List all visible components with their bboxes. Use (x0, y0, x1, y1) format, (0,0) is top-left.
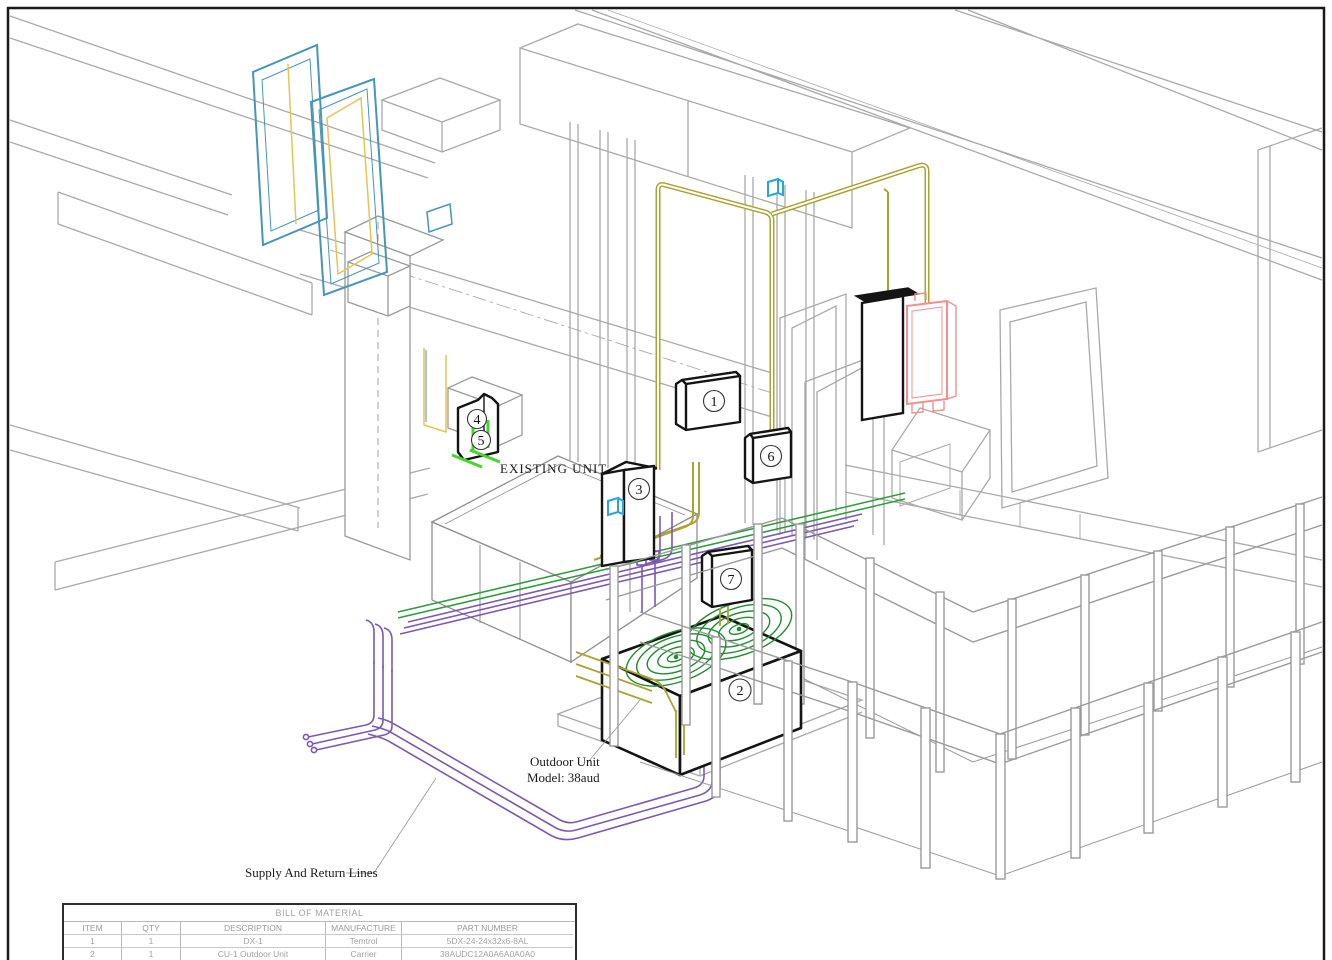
outdoor-unit-label-line2: Model: 38aud (527, 770, 600, 785)
outdoor-unit-label-line1: Outdoor Unit (530, 754, 600, 769)
callout-1[interactable]: 1 (676, 372, 740, 430)
bom-col-part-number: PART NUMBER (402, 922, 573, 935)
drawing-sheet: 2 3 1 (0, 0, 1332, 960)
bom-title: BILL OF MATERIAL (64, 905, 575, 922)
bom-row2-qty: 1 (122, 948, 181, 960)
bom-row2-item: 2 (64, 948, 122, 960)
bom-row1-part-number: 5DX-24-24x32x6-8AL (402, 935, 573, 948)
bom-col-manufacture: MANUFACTURE (326, 922, 402, 935)
bom-row2-part-number: 38AUDC12A0A6A0A0A0 (402, 948, 573, 960)
supply-return-label: Supply And Return Lines (245, 865, 378, 880)
bom-col-description: DESCRIPTION (181, 922, 326, 935)
callout-7[interactable]: 7 (702, 546, 752, 607)
callout-5-number: 5 (478, 434, 485, 449)
bom-row1-description: DX-1 (181, 935, 326, 948)
bom-row1-qty: 1 (122, 935, 181, 948)
isometric-scene: 2 3 1 (0, 0, 1332, 960)
sheet-border (8, 8, 1324, 960)
bill-of-material-table: BILL OF MATERIAL ITEM QTY DESCRIPTION MA… (62, 903, 577, 960)
callout-6-number: 6 (768, 450, 775, 465)
bom-row2-manufacture: Carrier (326, 948, 402, 960)
callout-3-number: 3 (636, 483, 643, 498)
bom-row1-item: 1 (64, 935, 122, 948)
callout-1-number: 1 (711, 395, 718, 410)
bom-row1-manufacture: Temtrol (326, 935, 402, 948)
bom-row2-description: CU-1 Outdoor Unit (181, 948, 326, 960)
callout-2-number: 2 (737, 684, 744, 699)
bom-col-item: ITEM (64, 922, 122, 935)
callout-6[interactable]: 6 (745, 428, 791, 483)
callout-7-number: 7 (728, 573, 735, 588)
bom-col-qty: QTY (122, 922, 181, 935)
existing-unit-label: EXISTING UNIT (500, 461, 607, 476)
callout-4-number: 4 (474, 413, 481, 428)
